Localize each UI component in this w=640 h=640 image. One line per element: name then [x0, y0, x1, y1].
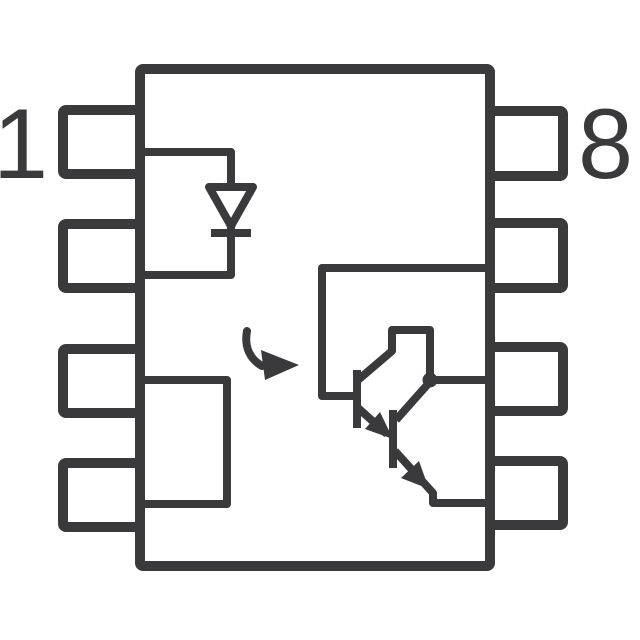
schematic-canvas: [0, 0, 640, 640]
pin-pad-7: [490, 223, 563, 288]
pin-pad-5: [490, 461, 563, 525]
light-arrow-icon: [246, 331, 299, 380]
internal-block: [140, 380, 227, 504]
pin-pad-4: [63, 463, 140, 527]
q1-collector: [358, 330, 430, 380]
optocoupler-diagram: 1 8: [0, 0, 640, 640]
pin-pad-8: [490, 111, 563, 176]
darlington-phototransistor-icon: [322, 268, 490, 503]
led-diode-icon: [140, 152, 253, 275]
pin-pad-1: [63, 110, 140, 174]
q2-collector: [396, 384, 428, 420]
pin-8-label: 8: [578, 94, 633, 193]
pin-1-label: 1: [0, 94, 48, 193]
pin-pad-3: [63, 349, 140, 413]
pin-pad-6: [490, 347, 563, 411]
ic-body: [140, 69, 490, 566]
right-pin-pads: [490, 111, 563, 525]
left-pin-pads: [63, 110, 140, 527]
pin-pad-2: [63, 224, 140, 288]
